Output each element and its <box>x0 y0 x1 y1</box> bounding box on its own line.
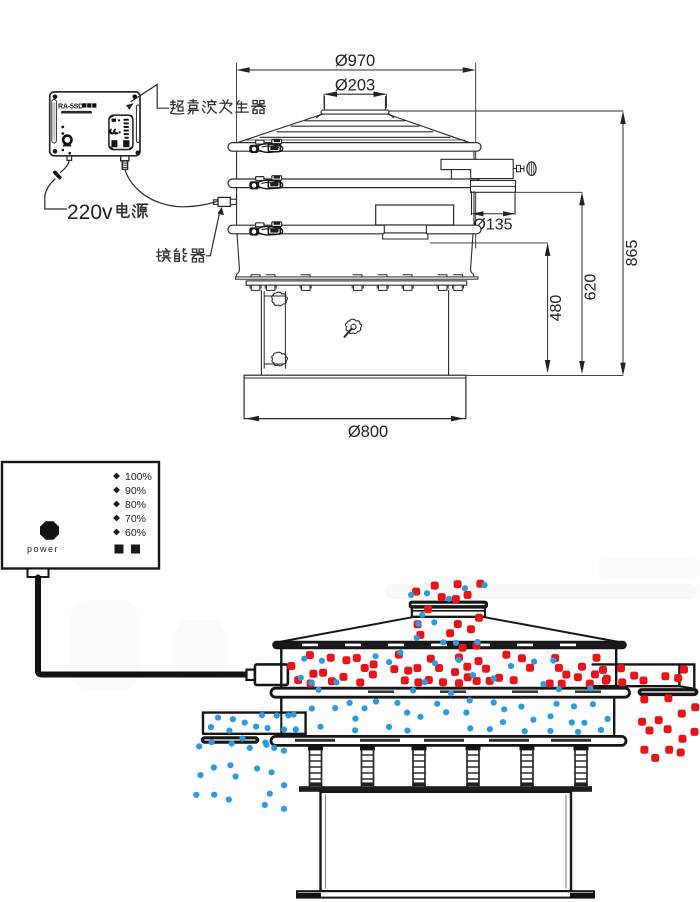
svg-text:90%: 90% <box>125 485 146 497</box>
svg-text:Ø970: Ø970 <box>335 52 375 70</box>
svg-text:Ø800: Ø800 <box>348 423 388 441</box>
svg-text:70%: 70% <box>125 513 146 525</box>
svg-text:865: 865 <box>624 240 641 267</box>
svg-text:RA-5SD: RA-5SD <box>58 102 83 111</box>
svg-text:Ø203: Ø203 <box>335 77 375 95</box>
svg-text:100%: 100% <box>125 471 152 483</box>
svg-text:60%: 60% <box>125 527 146 539</box>
svg-text:620: 620 <box>583 274 600 301</box>
svg-text:220v: 220v <box>67 201 113 224</box>
svg-text:480: 480 <box>548 295 565 322</box>
svg-text:80%: 80% <box>125 499 146 511</box>
svg-text:power: power <box>27 544 59 554</box>
